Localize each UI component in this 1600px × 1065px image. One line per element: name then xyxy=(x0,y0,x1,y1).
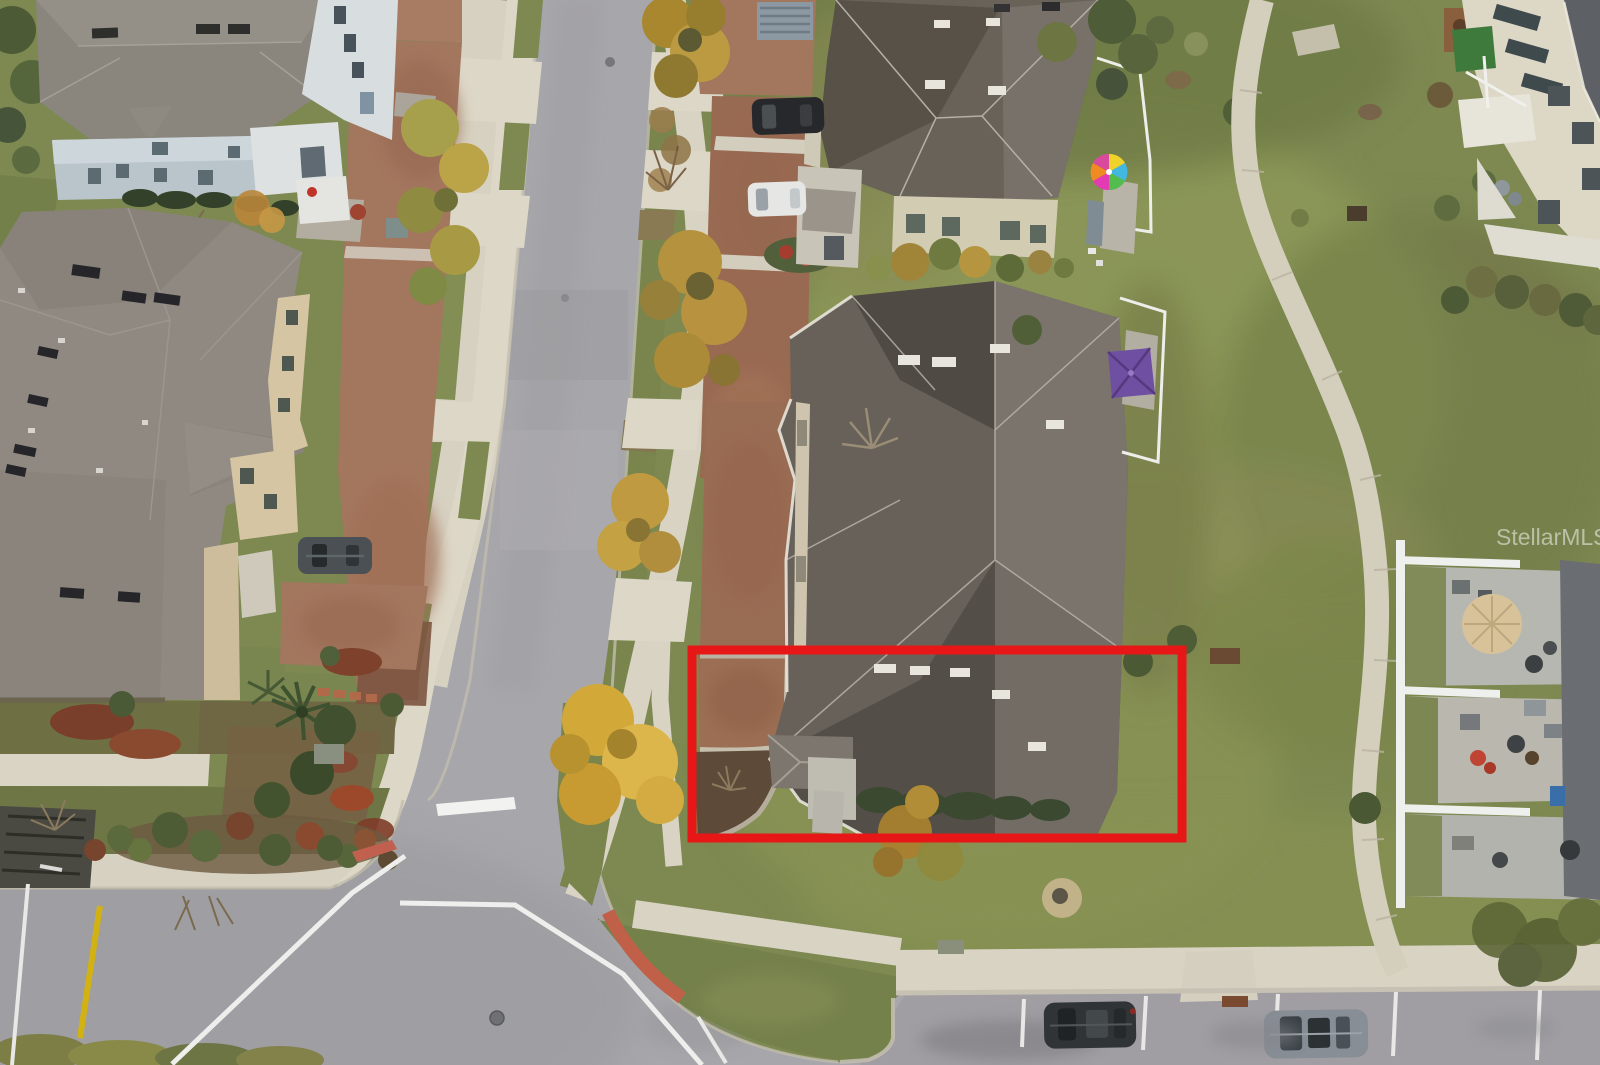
svg-text:StellarMLS: StellarMLS xyxy=(1496,524,1600,550)
